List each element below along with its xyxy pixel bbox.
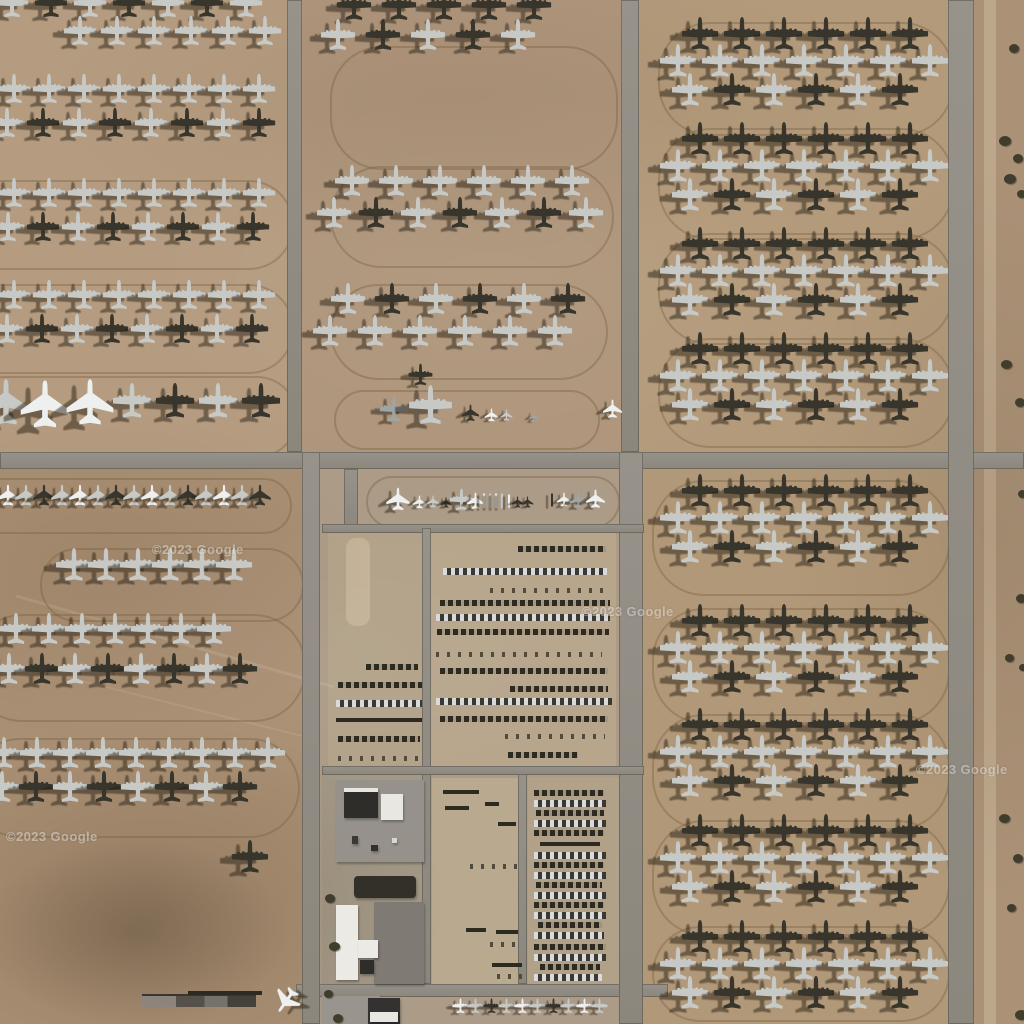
aircraft-icon bbox=[713, 869, 751, 907]
aircraft-icon bbox=[151, 736, 187, 772]
aircraft-icon bbox=[602, 399, 623, 420]
aircraft-icon bbox=[120, 770, 156, 806]
aircraft-icon bbox=[118, 736, 154, 772]
aircraft-icon bbox=[713, 387, 751, 425]
aircraft-icon bbox=[95, 313, 129, 347]
aircraft-icon bbox=[206, 107, 240, 141]
aircraft-icon bbox=[506, 282, 542, 318]
building bbox=[360, 960, 374, 974]
shrub bbox=[325, 894, 335, 903]
google-watermark: ©2023 Google bbox=[582, 604, 674, 619]
scrap-row bbox=[534, 852, 606, 859]
aircraft-icon bbox=[312, 314, 348, 350]
scrap-row bbox=[436, 698, 612, 705]
aircraft-icon bbox=[250, 736, 286, 772]
aircraft-icon bbox=[137, 177, 171, 211]
aircraft-icon bbox=[797, 282, 835, 320]
aircraft-icon bbox=[62, 107, 96, 141]
scrap-row bbox=[498, 822, 516, 826]
aircraft-icon bbox=[165, 313, 199, 347]
aircraft-icon bbox=[881, 869, 919, 907]
aircraft-icon bbox=[154, 770, 190, 806]
scrap-row bbox=[490, 942, 518, 947]
aircraft-icon bbox=[560, 998, 577, 1015]
aircraft-icon bbox=[196, 612, 232, 648]
aircraft-icon bbox=[63, 15, 97, 49]
aircraft-icon bbox=[26, 107, 60, 141]
service-road bbox=[322, 766, 644, 775]
aircraft-icon bbox=[797, 72, 835, 110]
google-watermark: ©2023 Google bbox=[916, 762, 1008, 777]
service-road bbox=[302, 452, 320, 1024]
aircraft-icon bbox=[242, 107, 276, 141]
aircraft-icon bbox=[130, 612, 166, 648]
scrap-row bbox=[443, 568, 607, 575]
aircraft-icon bbox=[671, 659, 709, 697]
aircraft-icon bbox=[131, 211, 165, 245]
scrap-row bbox=[188, 991, 262, 995]
aircraft-icon bbox=[25, 313, 59, 347]
aircraft-icon bbox=[102, 73, 136, 107]
aircraft-icon bbox=[755, 869, 793, 907]
aircraft-icon bbox=[554, 164, 590, 200]
building bbox=[370, 1012, 398, 1022]
scrap-row bbox=[338, 682, 422, 688]
scrap-row bbox=[540, 964, 600, 970]
aircraft-icon bbox=[537, 314, 573, 350]
aircraft-icon bbox=[500, 18, 536, 54]
aircraft-icon bbox=[358, 196, 394, 232]
aircraft-icon bbox=[881, 72, 919, 110]
aircraft-icon bbox=[713, 763, 751, 801]
aircraft-icon bbox=[881, 529, 919, 567]
shrub bbox=[333, 1014, 343, 1023]
aircraft-icon bbox=[64, 378, 116, 430]
aircraft-icon bbox=[713, 72, 751, 110]
aircraft-icon bbox=[576, 998, 593, 1015]
scrap-row bbox=[534, 912, 606, 919]
shrub bbox=[1009, 44, 1019, 53]
scrap-row bbox=[534, 932, 604, 939]
scrap-row bbox=[436, 652, 602, 657]
aircraft-icon bbox=[137, 279, 171, 313]
aircraft-icon bbox=[797, 529, 835, 567]
aircraft-icon bbox=[402, 314, 438, 350]
aircraft-icon bbox=[521, 496, 534, 509]
aircraft-icon bbox=[222, 770, 258, 806]
aircraft-icon bbox=[500, 409, 513, 422]
aircraft-icon bbox=[163, 612, 199, 648]
aircraft-icon bbox=[839, 177, 877, 215]
aircraft-icon bbox=[172, 73, 206, 107]
building bbox=[371, 845, 378, 851]
aircraft-icon bbox=[385, 487, 411, 513]
scrap-row bbox=[536, 882, 602, 888]
aircraft-icon bbox=[839, 387, 877, 425]
scrap-row bbox=[440, 716, 608, 722]
aircraft-icon bbox=[52, 736, 88, 772]
shrub bbox=[999, 136, 1011, 146]
aircraft-icon bbox=[242, 279, 276, 313]
aircraft-icon bbox=[839, 975, 877, 1013]
aircraft-icon bbox=[207, 73, 241, 107]
aircraft-icon bbox=[797, 659, 835, 697]
aircraft-icon bbox=[671, 387, 709, 425]
aircraft-icon bbox=[90, 652, 126, 688]
aircraft-icon bbox=[137, 15, 171, 49]
aircraft-icon bbox=[19, 736, 55, 772]
aircraft-icon bbox=[235, 313, 269, 347]
scrap-row bbox=[534, 820, 606, 827]
aircraft-icon bbox=[242, 73, 276, 107]
aircraft-icon bbox=[67, 73, 101, 107]
building bbox=[354, 876, 416, 898]
aircraft-icon bbox=[241, 382, 281, 422]
aircraft-icon bbox=[24, 652, 60, 688]
scrap-row bbox=[485, 802, 499, 806]
aircraft-icon bbox=[166, 211, 200, 245]
shrub bbox=[999, 814, 1010, 823]
scrap-row bbox=[466, 928, 486, 932]
scrap-row bbox=[534, 862, 604, 868]
aircraft-icon bbox=[248, 484, 272, 508]
aircraft-icon bbox=[236, 211, 270, 245]
terrain-block bbox=[346, 538, 370, 626]
aircraft-icon bbox=[408, 384, 453, 429]
terrain-block bbox=[984, 0, 996, 1024]
satellite-map-canvas[interactable]: ©2023 Google©2023 Google©2023 Google©202… bbox=[0, 0, 1024, 1024]
aircraft-icon bbox=[671, 975, 709, 1013]
aircraft-icon bbox=[671, 72, 709, 110]
aircraft-icon bbox=[526, 196, 562, 232]
aircraft-icon bbox=[713, 975, 751, 1013]
aircraft-icon bbox=[755, 282, 793, 320]
aircraft-icon bbox=[528, 412, 539, 423]
aircraft-icon bbox=[86, 770, 122, 806]
aircraft-icon bbox=[713, 282, 751, 320]
aircraft-icon bbox=[408, 363, 433, 388]
aircraft-icon bbox=[32, 279, 66, 313]
aircraft-icon bbox=[755, 975, 793, 1013]
aircraft-icon bbox=[0, 279, 31, 313]
service-road bbox=[518, 772, 527, 984]
shrub bbox=[1007, 904, 1016, 912]
scrap-row bbox=[534, 954, 606, 961]
aircraft-icon bbox=[568, 196, 604, 232]
aircraft-icon bbox=[881, 975, 919, 1013]
aircraft-icon bbox=[755, 387, 793, 425]
shrub bbox=[1013, 154, 1023, 163]
aircraft-icon bbox=[217, 736, 253, 772]
aircraft-icon bbox=[379, 395, 409, 425]
aircraft-icon bbox=[797, 763, 835, 801]
scrap-row bbox=[496, 930, 518, 934]
aircraft-icon bbox=[378, 164, 414, 200]
aircraft-icon bbox=[713, 659, 751, 697]
aircraft-icon bbox=[484, 408, 499, 423]
scrap-row bbox=[142, 996, 256, 1007]
aircraft-icon bbox=[67, 279, 101, 313]
google-watermark: ©2023 Google bbox=[6, 829, 98, 844]
aircraft-icon bbox=[550, 282, 586, 318]
service-road bbox=[948, 0, 974, 1024]
aircraft-icon bbox=[585, 489, 606, 510]
aircraft-icon bbox=[201, 211, 235, 245]
aircraft-icon bbox=[484, 196, 520, 232]
aircraft-icon bbox=[85, 736, 121, 772]
aircraft-icon bbox=[755, 763, 793, 801]
aircraft-icon bbox=[422, 164, 458, 200]
aircraft-icon bbox=[248, 15, 282, 49]
scrap-row bbox=[492, 963, 522, 967]
scrap-row bbox=[338, 736, 420, 742]
aircraft-icon bbox=[755, 659, 793, 697]
aircraft-icon bbox=[418, 282, 454, 318]
service-road bbox=[322, 524, 644, 533]
shrub bbox=[1016, 594, 1024, 603]
shrub bbox=[1017, 190, 1024, 198]
aircraft-icon bbox=[189, 652, 225, 688]
aircraft-icon bbox=[330, 282, 366, 318]
building bbox=[381, 794, 403, 820]
scrap-row bbox=[534, 892, 606, 899]
aircraft-icon bbox=[102, 279, 136, 313]
aircraft-icon bbox=[18, 770, 54, 806]
shrub bbox=[1001, 360, 1012, 369]
service-road bbox=[621, 0, 639, 452]
aircraft-icon bbox=[170, 107, 204, 141]
aircraft-icon bbox=[881, 763, 919, 801]
scrap-row bbox=[534, 974, 602, 981]
aircraft-icon bbox=[0, 313, 24, 347]
aircraft-icon bbox=[498, 998, 515, 1015]
aircraft-icon bbox=[32, 177, 66, 211]
aircraft-icon bbox=[155, 382, 195, 422]
aircraft-icon bbox=[0, 211, 25, 245]
scrap-row bbox=[534, 902, 604, 908]
shrub bbox=[1015, 1010, 1024, 1020]
aircraft-icon bbox=[510, 164, 546, 200]
aircraft-icon bbox=[207, 279, 241, 313]
aircraft-icon bbox=[881, 282, 919, 320]
aircraft-icon bbox=[442, 196, 478, 232]
aircraft-icon bbox=[334, 164, 370, 200]
aircraft-icon bbox=[207, 177, 241, 211]
aircraft-icon bbox=[100, 15, 134, 49]
building bbox=[358, 940, 378, 958]
aircraft-icon bbox=[32, 73, 66, 107]
aircraft-icon bbox=[671, 763, 709, 801]
aircraft-icon bbox=[61, 211, 95, 245]
aircraft-icon bbox=[545, 998, 562, 1015]
aircraft-icon bbox=[64, 612, 100, 648]
scrap-row bbox=[490, 588, 606, 593]
aircraft-icon bbox=[200, 313, 234, 347]
scrap-row bbox=[534, 944, 606, 950]
aircraft-icon bbox=[839, 659, 877, 697]
aircraft-icon bbox=[320, 18, 356, 54]
aircraft-icon bbox=[96, 211, 130, 245]
scrap-row bbox=[443, 790, 479, 794]
aircraft-icon bbox=[0, 652, 27, 688]
aircraft-icon bbox=[98, 107, 132, 141]
aircraft-icon bbox=[316, 196, 352, 232]
scrap-row bbox=[534, 790, 604, 796]
aircraft-icon bbox=[102, 177, 136, 211]
aircraft-icon bbox=[671, 529, 709, 567]
aircraft-icon bbox=[671, 869, 709, 907]
scrap-row bbox=[445, 806, 469, 810]
scrap-row bbox=[366, 664, 418, 670]
scrap-row bbox=[534, 872, 606, 879]
aircraft-icon bbox=[671, 282, 709, 320]
aircraft-icon bbox=[466, 164, 502, 200]
aircraft-icon bbox=[184, 736, 220, 772]
aircraft-icon bbox=[755, 529, 793, 567]
shrub bbox=[1018, 490, 1024, 498]
scrap-row bbox=[336, 700, 422, 707]
shrub bbox=[324, 990, 333, 998]
aircraft-icon bbox=[365, 18, 401, 54]
building bbox=[336, 905, 358, 980]
aircraft-icon bbox=[797, 387, 835, 425]
aircraft-icon bbox=[97, 612, 133, 648]
aircraft-icon bbox=[461, 404, 480, 423]
aircraft-icon bbox=[174, 15, 208, 49]
scrap-row bbox=[338, 756, 422, 761]
shrub bbox=[1013, 854, 1023, 863]
service-road bbox=[0, 452, 1024, 469]
building bbox=[344, 792, 378, 818]
aircraft-icon bbox=[839, 282, 877, 320]
aircraft-icon bbox=[452, 998, 469, 1015]
aircraft-icon bbox=[400, 196, 436, 232]
aircraft-icon bbox=[0, 770, 20, 806]
aircraft-icon bbox=[797, 177, 835, 215]
building bbox=[392, 838, 397, 843]
aircraft-icon bbox=[797, 975, 835, 1013]
aircraft-icon bbox=[211, 15, 245, 49]
aircraft-icon bbox=[0, 177, 31, 211]
terrain-block bbox=[328, 528, 424, 770]
scrap-row bbox=[534, 800, 606, 807]
scrap-row bbox=[440, 668, 608, 674]
aircraft-icon bbox=[514, 998, 531, 1015]
service-road bbox=[619, 452, 643, 1024]
aircraft-icon bbox=[455, 18, 491, 54]
aircraft-icon bbox=[198, 382, 238, 422]
aircraft-icon bbox=[492, 314, 528, 350]
scrap-row bbox=[510, 686, 608, 692]
aircraft-icon bbox=[60, 313, 94, 347]
scrap-row bbox=[536, 810, 604, 816]
scrap-row bbox=[508, 752, 578, 758]
scrap-row bbox=[538, 922, 602, 928]
aircraft-icon bbox=[374, 282, 410, 318]
google-watermark: ©2023 Google bbox=[152, 542, 244, 557]
aircraft-icon bbox=[0, 612, 34, 648]
scrap-row bbox=[470, 864, 520, 869]
aircraft-icon bbox=[447, 314, 483, 350]
aircraft-icon bbox=[57, 652, 93, 688]
aircraft-icon bbox=[31, 612, 67, 648]
aircraft-icon bbox=[26, 211, 60, 245]
aircraft-icon bbox=[713, 177, 751, 215]
aircraft-icon bbox=[242, 177, 276, 211]
aircraft-icon bbox=[755, 177, 793, 215]
scrap-row bbox=[437, 629, 609, 635]
building bbox=[352, 836, 358, 844]
scrap-row bbox=[497, 974, 529, 979]
aircraft-icon bbox=[797, 869, 835, 907]
building bbox=[374, 902, 424, 984]
aircraft-icon bbox=[839, 529, 877, 567]
taxiway-loop bbox=[330, 46, 618, 170]
aircraft-icon bbox=[172, 177, 206, 211]
aircraft-icon bbox=[134, 107, 168, 141]
aircraft-icon bbox=[137, 73, 171, 107]
aircraft-icon bbox=[52, 770, 88, 806]
aircraft-icon bbox=[671, 177, 709, 215]
shrub bbox=[1015, 398, 1024, 407]
scrap-row bbox=[540, 842, 600, 846]
aircraft-icon bbox=[483, 998, 500, 1015]
aircraft-icon bbox=[172, 279, 206, 313]
aircraft-icon bbox=[188, 770, 224, 806]
aircraft-icon bbox=[412, 495, 427, 510]
aircraft-icon bbox=[839, 869, 877, 907]
aircraft-icon bbox=[67, 177, 101, 211]
scrap-row bbox=[505, 734, 605, 739]
aircraft-icon bbox=[123, 652, 159, 688]
scrap-row bbox=[336, 718, 422, 722]
aircraft-icon bbox=[839, 763, 877, 801]
aircraft-icon bbox=[410, 18, 446, 54]
aircraft-icon bbox=[0, 107, 24, 141]
shrub bbox=[1005, 654, 1014, 662]
aircraft-icon bbox=[357, 314, 393, 350]
aircraft-icon bbox=[881, 387, 919, 425]
aircraft-icon bbox=[231, 839, 269, 877]
shrub bbox=[1004, 174, 1016, 184]
aircraft-icon bbox=[529, 998, 546, 1015]
aircraft-icon bbox=[467, 998, 484, 1015]
aircraft-icon bbox=[222, 652, 258, 688]
aircraft-icon bbox=[130, 313, 164, 347]
shrub bbox=[329, 942, 340, 951]
aircraft-icon bbox=[881, 659, 919, 697]
aircraft-icon bbox=[156, 652, 192, 688]
service-road bbox=[344, 469, 358, 532]
aircraft-icon bbox=[112, 382, 152, 422]
scrap-row bbox=[534, 830, 604, 836]
aircraft-icon bbox=[839, 72, 877, 110]
scrap-row bbox=[518, 546, 606, 552]
aircraft-icon bbox=[881, 177, 919, 215]
shrub bbox=[1019, 664, 1024, 671]
service-road bbox=[287, 0, 302, 452]
aircraft-icon bbox=[713, 529, 751, 567]
aircraft-icon bbox=[755, 72, 793, 110]
aircraft-icon bbox=[426, 495, 440, 509]
aircraft-icon bbox=[591, 998, 608, 1015]
aircraft-icon bbox=[0, 0, 29, 21]
aircraft-icon bbox=[462, 282, 498, 318]
aircraft-icon bbox=[0, 73, 31, 107]
